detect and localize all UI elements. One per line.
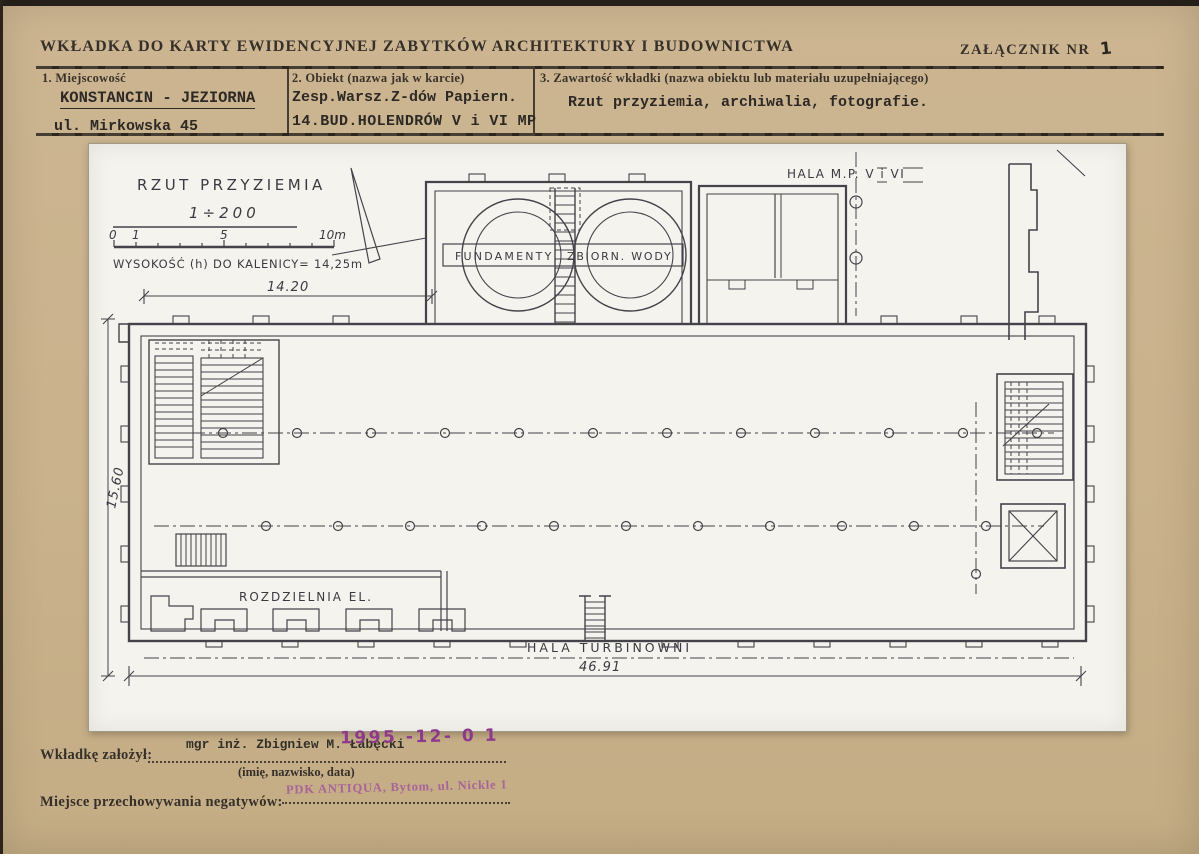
header-rule bbox=[36, 66, 1164, 69]
attachment-label-text: ZAŁĄCZNIK NR bbox=[960, 42, 1090, 58]
floor-plan-sheet: RZUT PRZYZIEMIA 1÷200 0 1 5 10m WYSOKOŚĆ… bbox=[88, 143, 1127, 732]
field3-label: 3. Zawartość wkładki (nazwa obiektu lub … bbox=[540, 71, 929, 86]
tank-ladder bbox=[550, 188, 580, 324]
founder-dotted-line bbox=[148, 760, 506, 763]
dimension-top: 14.20 bbox=[139, 280, 437, 304]
scan-edge-top bbox=[0, 0, 1199, 6]
height-note-label: WYSOKOŚĆ (h) DO KALENICY= 14,25m bbox=[113, 256, 363, 271]
top-right-room bbox=[699, 186, 846, 324]
field2-label: 2. Obiekt (nazwa jak w karcie) bbox=[292, 71, 536, 86]
negatives-label: Miejsce przechowywania negatywów: bbox=[40, 794, 283, 811]
field3-value: Rzut przyziemia, archiwalia, fotografie. bbox=[568, 94, 929, 111]
attachment-label: ZAŁĄCZNIK NR1 bbox=[960, 39, 1114, 59]
scale-tick-5: 5 bbox=[220, 228, 228, 242]
rozdzielnia-label: ROZDZIELNIA EL. bbox=[239, 590, 373, 604]
scale-tick-1: 1 bbox=[132, 228, 140, 242]
plan-header: RZUT PRZYZIEMIA 1÷200 0 1 5 10m WYSOKOŚĆ… bbox=[109, 176, 363, 271]
water-tank-structure: FUNDAMENTY ZBIORN. WODY bbox=[426, 174, 691, 324]
zbiorn-wody-label: ZBIORN. WODY bbox=[567, 250, 673, 263]
elevator-shaft bbox=[1001, 504, 1065, 568]
north-arrow-icon bbox=[332, 168, 426, 263]
right-staircase bbox=[997, 374, 1073, 480]
floor-plan-drawing: RZUT PRZYZIEMIA 1÷200 0 1 5 10m WYSOKOŚĆ… bbox=[89, 144, 1126, 731]
scale-tick-10: 10m bbox=[319, 228, 346, 242]
form-field-obiekt: 2. Obiekt (nazwa jak w karcie) Zesp.Wars… bbox=[292, 71, 536, 130]
dim-top-label: 14.20 bbox=[267, 280, 309, 295]
dim-bottom-label: 46.91 bbox=[579, 660, 621, 675]
archive-stamp: PDK ANTIQUA, Bytom, ul. Nickle 1 bbox=[286, 777, 508, 797]
founder-label: Wkładkę założył: bbox=[40, 747, 152, 764]
hala-mp-centerline: HALA M.P. V i VI bbox=[787, 152, 923, 316]
fundamenty-label: FUNDAMENTY bbox=[455, 250, 554, 263]
bottom-ladder bbox=[579, 596, 611, 641]
name-caption: (imię, nazwisko, data) bbox=[238, 765, 355, 780]
page-title: WKŁADKA DO KARTY EWIDENCYJNEJ ZABYTKÓW A… bbox=[40, 38, 794, 56]
form-field-zawartosc: 3. Zawartość wkładki (nazwa obiektu lub … bbox=[540, 71, 929, 111]
form-field-miejscowosc: 1. Miejscowość KONSTANCIN - JEZIORNA ul.… bbox=[42, 71, 255, 135]
form-bottom-rule bbox=[36, 133, 1164, 136]
hala-mp-label: HALA M.P. V i VI bbox=[787, 167, 905, 181]
scale-tick-0: 0 bbox=[109, 228, 117, 242]
field1-value-town: KONSTANCIN - JEZIORNA bbox=[60, 89, 255, 109]
date-stamp: 1995 -12- 0 1 bbox=[340, 726, 499, 749]
attachment-number: 1 bbox=[1099, 38, 1114, 59]
left-staircase bbox=[149, 340, 279, 464]
scale-bar bbox=[114, 240, 334, 247]
right-annex bbox=[1009, 150, 1085, 340]
scan-edge-left bbox=[0, 0, 3, 854]
field1-label: 1. Miejscowość bbox=[42, 71, 255, 86]
dimensions: 46.91 15.60 bbox=[101, 314, 1086, 686]
field2-value-name: Zesp.Warsz.Z-dów Papiern. bbox=[292, 89, 536, 106]
interior-walls bbox=[141, 534, 447, 631]
plan-title-label: RZUT PRZYZIEMIA bbox=[137, 176, 326, 194]
scanned-record-card: WKŁADKA DO KARTY EWIDENCYJNEJ ZABYTKÓW A… bbox=[0, 0, 1199, 854]
hala-turbinowni-label: HALA TURBINOWNI bbox=[527, 640, 692, 655]
form-divider-1 bbox=[287, 69, 289, 133]
field2-value-building: 14.BUD.HOLENDRÓW V i VI MP bbox=[292, 113, 536, 130]
plan-scale-label: 1÷200 bbox=[189, 204, 260, 222]
column-grid bbox=[154, 402, 1054, 594]
negatives-dotted-line bbox=[282, 801, 510, 804]
